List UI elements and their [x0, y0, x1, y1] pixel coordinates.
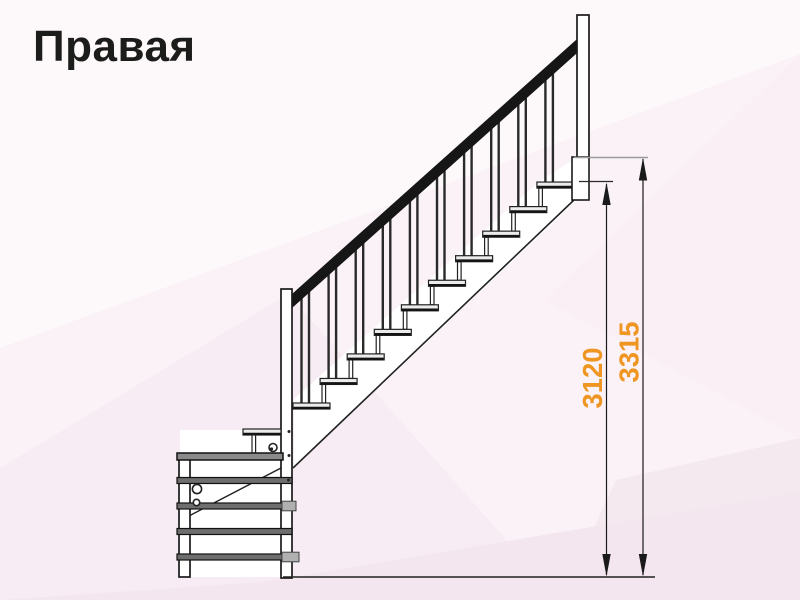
dimension-label-3315: 3315 [614, 321, 645, 382]
bolt-hole [192, 484, 201, 493]
bolt-hole [269, 444, 277, 452]
fixing-dot [287, 479, 290, 482]
riser [349, 360, 353, 379]
winder-landing-tread [177, 453, 283, 460]
bolt-dot [270, 447, 273, 450]
top-newel-post [577, 15, 589, 158]
riser [322, 384, 326, 403]
winder-bar [177, 529, 292, 535]
riser [485, 237, 489, 256]
page-title: Правая [33, 22, 196, 72]
arrowhead-down-icon [602, 554, 610, 577]
riser [458, 262, 462, 281]
riser [376, 335, 380, 354]
winder-bar-cap [282, 552, 299, 562]
handrail [287, 43, 581, 306]
riser [512, 213, 516, 232]
winder-bar-cap [282, 501, 296, 511]
riser [430, 286, 434, 305]
arrowhead-up-icon [602, 183, 610, 206]
winder-riser [252, 435, 256, 453]
top-post-bracket [572, 157, 589, 200]
riser [403, 311, 407, 330]
riser [539, 188, 543, 207]
arrowhead-down-icon [639, 554, 647, 577]
winder-bar [177, 478, 292, 484]
staircase-drawing: 3120 3315 [0, 0, 800, 600]
fixing-dot [288, 454, 291, 457]
arrowhead-up-icon [639, 158, 647, 181]
winder-bar [177, 554, 292, 560]
bolt-hole [193, 499, 199, 505]
screenshot-canvas: 3120 3315 Правая [0, 0, 800, 600]
dimension-label-3120: 3120 [577, 347, 608, 408]
fixing-dot [288, 430, 291, 433]
